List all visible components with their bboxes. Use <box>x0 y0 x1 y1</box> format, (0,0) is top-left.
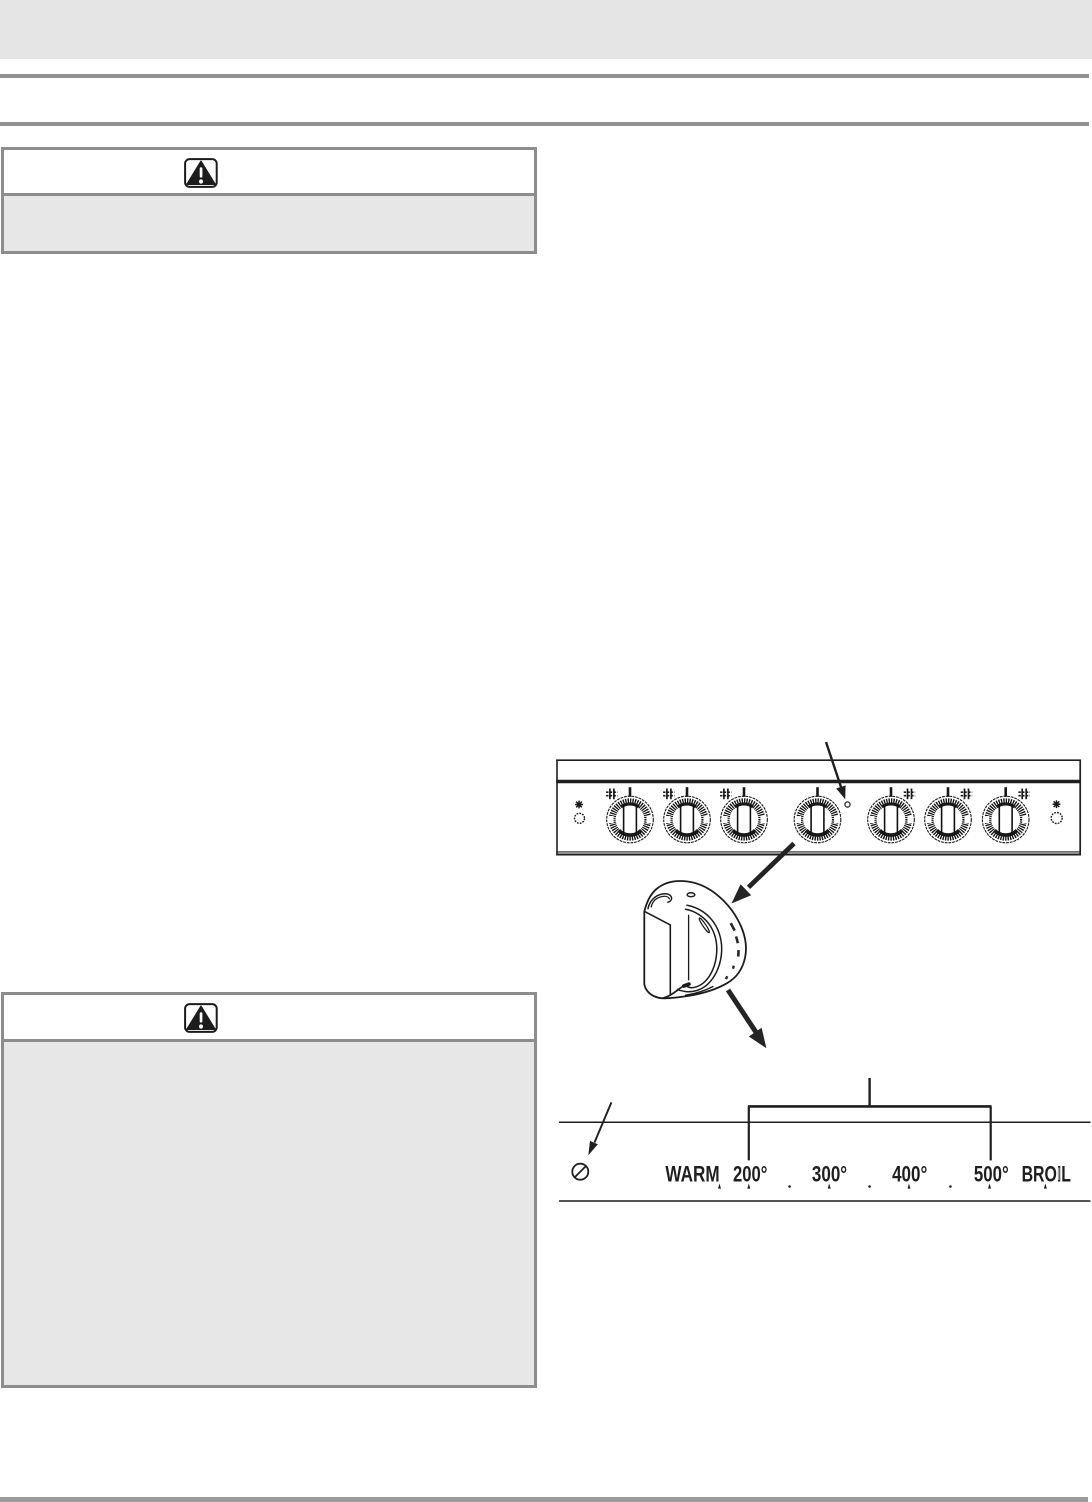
svg-text:500°: 500° <box>974 1161 1009 1186</box>
svg-text:300°: 300° <box>812 1161 847 1186</box>
svg-text:200°: 200° <box>733 1161 767 1186</box>
svg-text:BROIL: BROIL <box>1022 1161 1071 1186</box>
svg-text:WARM: WARM <box>665 1161 719 1186</box>
svg-text:400°: 400° <box>892 1161 927 1186</box>
